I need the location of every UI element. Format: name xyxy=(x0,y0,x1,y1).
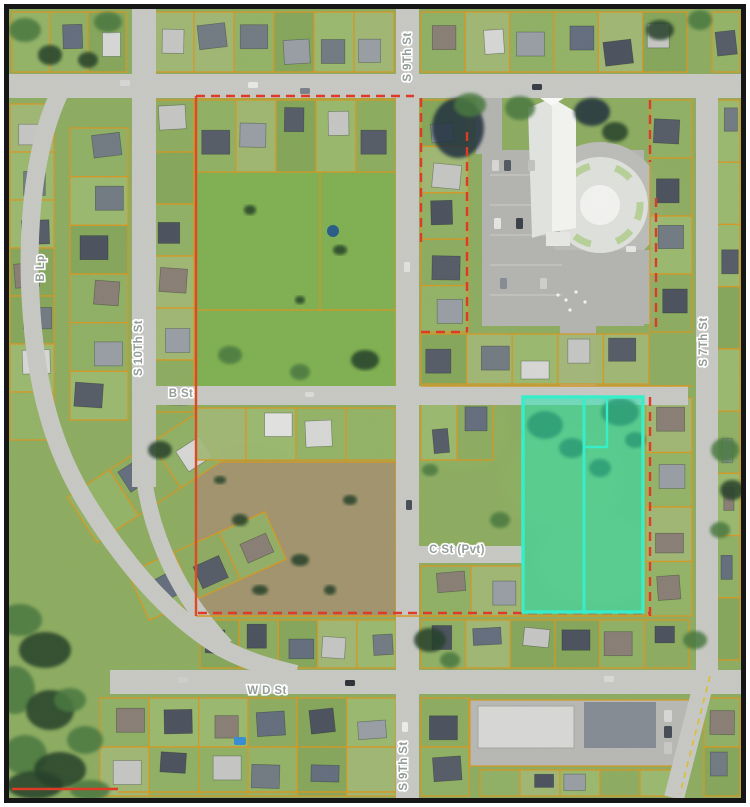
photo-grain xyxy=(9,9,741,798)
street-label-s10th: S 10Th St xyxy=(133,320,145,376)
street-label-s9th-north: S 9Th St xyxy=(402,32,414,81)
map-figure: S 9Th St S 10Th St S 7Th St B Lp S 9Th S… xyxy=(0,0,750,807)
street-label-c-st: C St (Pvt) xyxy=(429,544,485,556)
street-label-w-d-st: W D St xyxy=(247,685,286,697)
street-label-s7th: S 7Th St xyxy=(698,317,710,366)
aerial-map: S 9Th St S 10Th St S 7Th St B Lp S 9Th S… xyxy=(0,0,750,807)
street-label-b-lp: B Lp xyxy=(35,254,47,281)
street-label-b-st: B St xyxy=(169,388,194,400)
street-label-s9th-south: S 9Th St xyxy=(398,741,410,790)
